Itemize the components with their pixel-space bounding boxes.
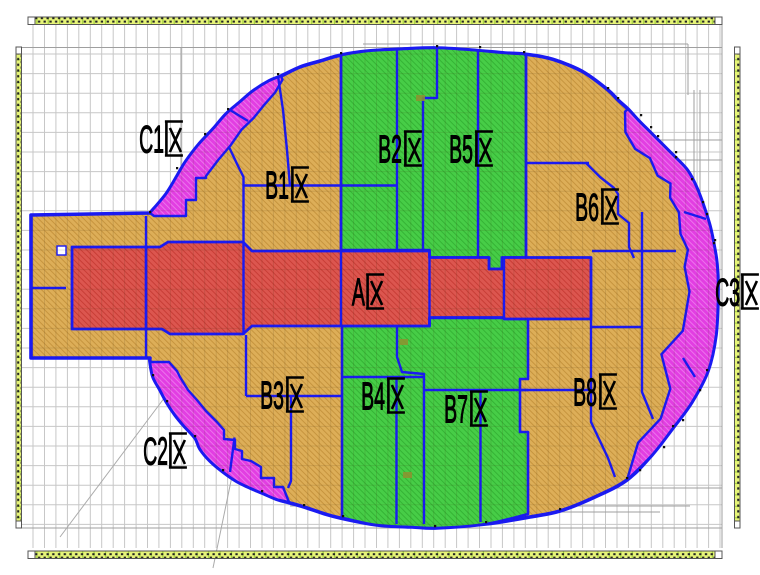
svg-text:B2: B2	[378, 127, 402, 171]
svg-text:B3: B3	[260, 373, 284, 417]
svg-text:B5: B5	[449, 127, 473, 171]
svg-text:B4: B4	[361, 374, 385, 418]
svg-text:C3: C3	[715, 270, 740, 314]
svg-text:A: A	[352, 270, 365, 314]
svg-text:B6: B6	[575, 185, 599, 229]
svg-text:B1: B1	[265, 163, 289, 207]
svg-text:C1: C1	[139, 117, 164, 161]
svg-text:B8: B8	[573, 370, 597, 414]
svg-text:C2: C2	[143, 429, 168, 473]
svg-text:B7: B7	[444, 387, 468, 431]
